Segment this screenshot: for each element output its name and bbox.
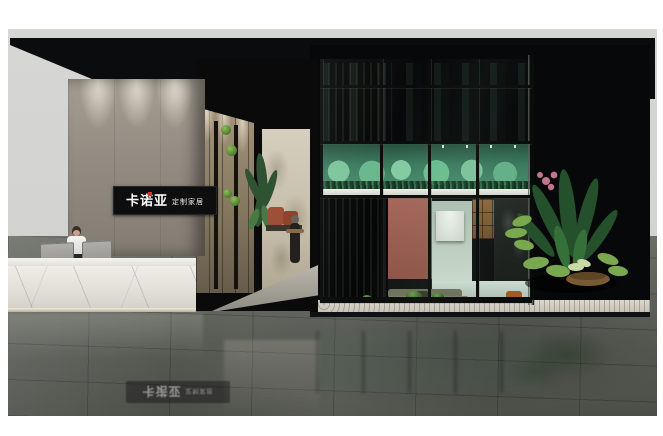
desk-base-light: [8, 308, 196, 312]
desk-reflection: [8, 313, 203, 361]
bench-cushion: [268, 207, 284, 225]
corridor: [196, 59, 318, 311]
logo-reflection-subtext: 定制家居: [186, 388, 214, 397]
plants-reflection: [503, 333, 633, 403]
base-curb: [310, 312, 650, 317]
glass-showroom: [310, 45, 650, 317]
pale-plant: [568, 258, 592, 271]
logo-floor-reflection: 卡诺亚 定制家居: [126, 381, 230, 403]
brand-logo-text: 卡诺亚: [126, 194, 168, 207]
plant-cluster: [496, 155, 646, 305]
figure-statue: [286, 215, 304, 267]
desk-top: [8, 258, 196, 266]
moss-ball: [221, 125, 231, 135]
showroom-render: 卡诺亚 定制家居: [8, 29, 657, 416]
brand-logo-subtext: 定制家居: [172, 199, 204, 206]
corridor-light-reflection: [224, 340, 320, 416]
brand-logo-plaque: 卡诺亚 定制家居: [113, 186, 217, 215]
reception-desk: [8, 258, 196, 312]
moss-ball: [226, 145, 237, 156]
render-page: 卡诺亚 定制家居: [0, 0, 663, 436]
desk-front-marble: [8, 266, 196, 308]
statue-arm: [286, 229, 304, 233]
brand-accent-mark: [148, 192, 152, 196]
logo-reflection-text: 卡诺亚: [142, 384, 181, 401]
pink-flowers: [537, 172, 557, 191]
moss-ball: [230, 196, 240, 206]
